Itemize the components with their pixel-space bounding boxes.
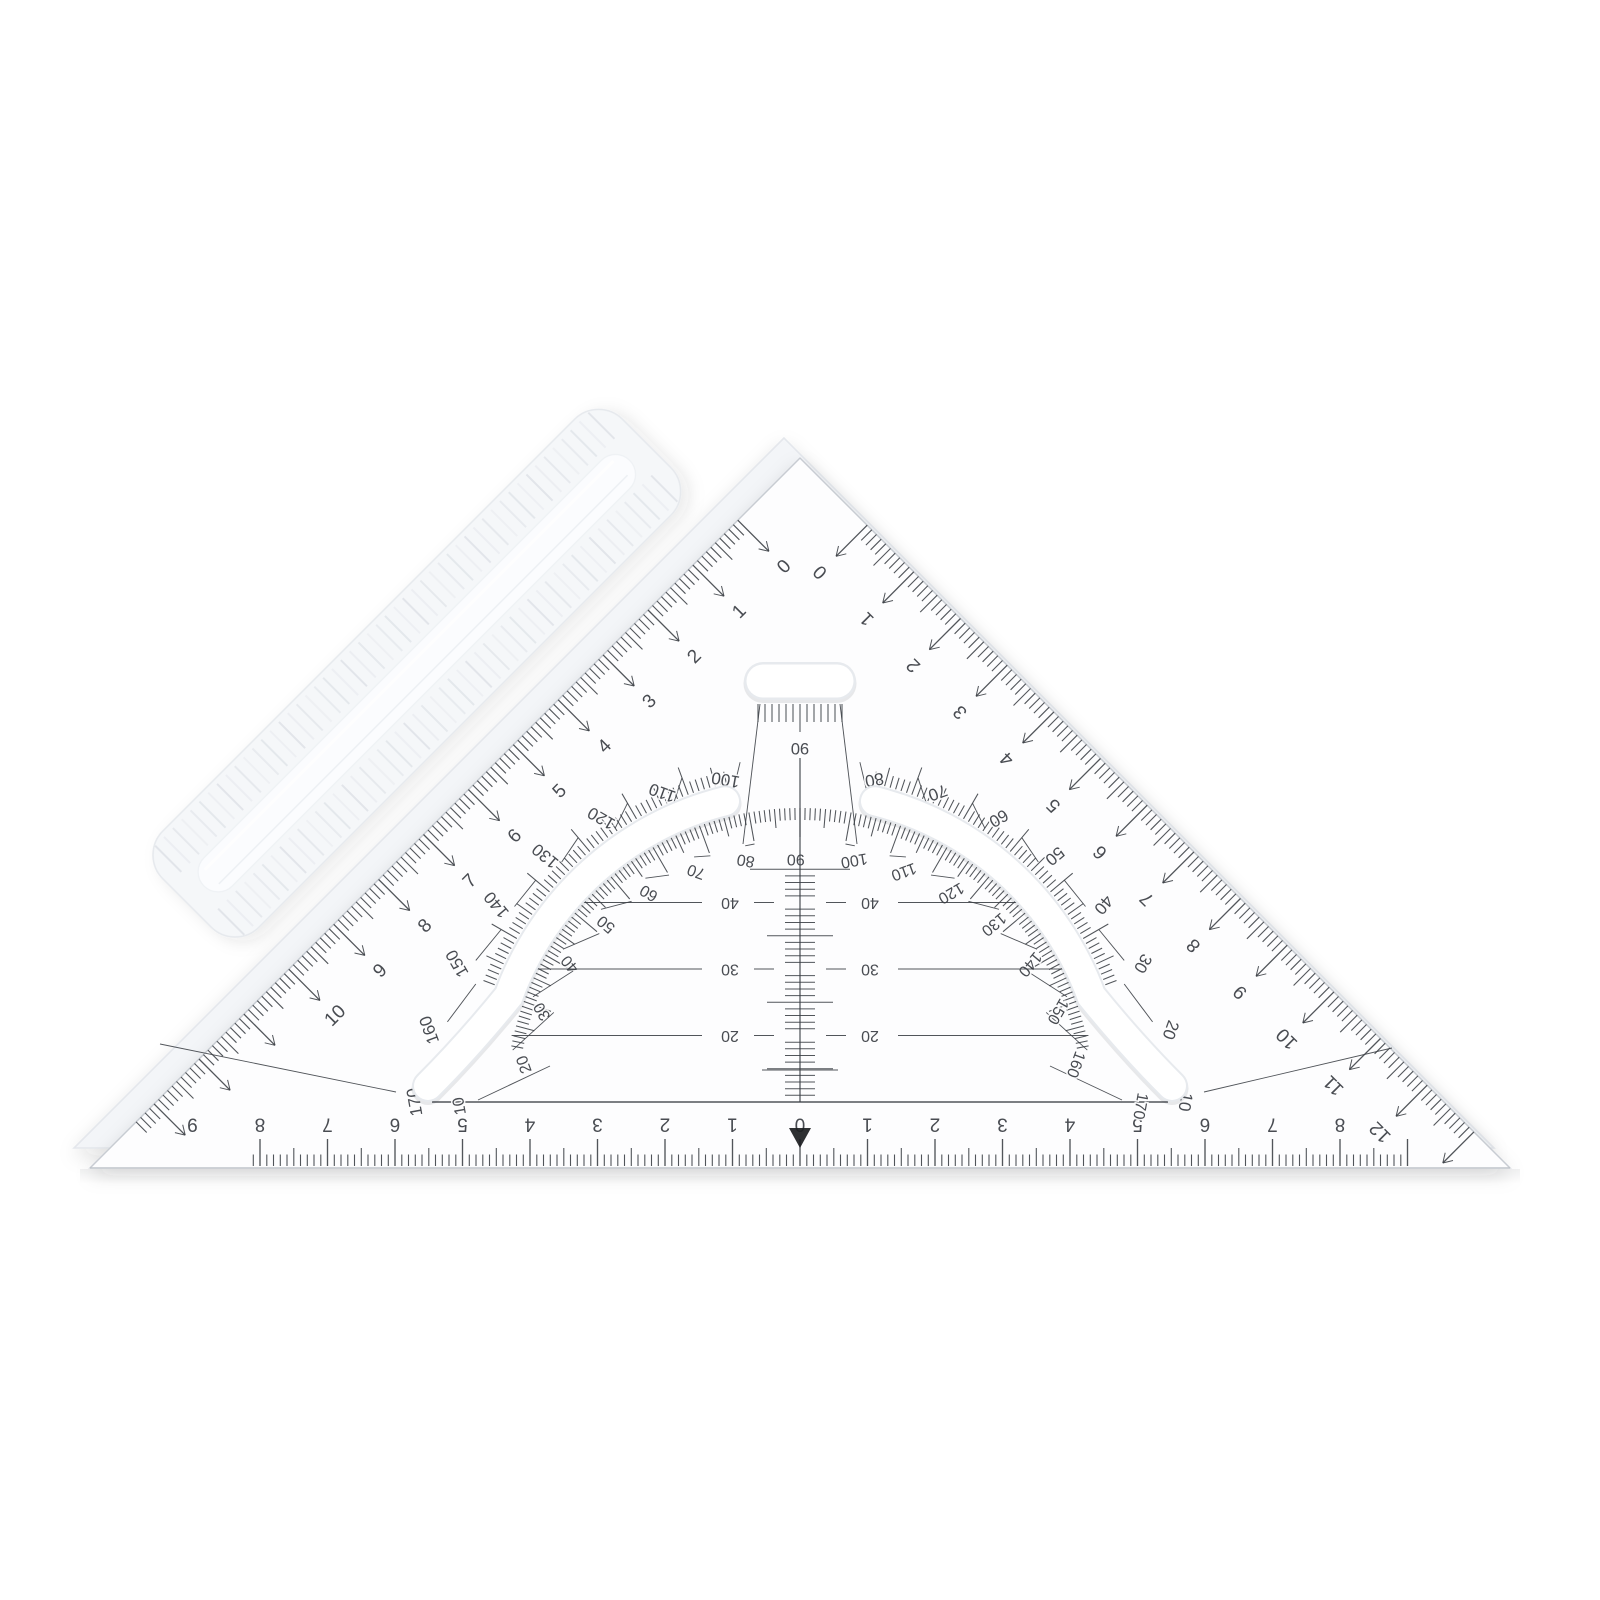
bottom-unit-label: 8 (1335, 1114, 1346, 1135)
bottom-unit-label: 6 (390, 1114, 401, 1135)
set-square-protractor-photo: 0123456789100123456789101112012345678912… (0, 0, 1600, 1600)
bottom-unit-label: 8 (255, 1114, 266, 1135)
bottom-unit-label: 1 (862, 1114, 873, 1135)
bottom-edge-shade (80, 1169, 1520, 1184)
protractor-inner-label: 90 (787, 851, 805, 868)
bottom-unit-label: 7 (322, 1114, 333, 1135)
guide-line-label: 40 (721, 894, 739, 911)
guide-line-label: 30 (721, 961, 739, 978)
guide-line-label: 40 (861, 894, 879, 911)
bottom-unit-label: 4 (1064, 1114, 1075, 1135)
bottom-unit-label: 6 (1200, 1114, 1211, 1135)
bottom-unit-label: 5 (457, 1114, 468, 1135)
guide-line-label: 20 (721, 1027, 739, 1044)
bottom-unit-label: 2 (930, 1114, 941, 1135)
bottom-unit-label: 1 (727, 1114, 738, 1135)
bottom-unit-label: 2 (660, 1114, 671, 1135)
bottom-unit-label: 9 (187, 1114, 198, 1135)
protractor-inner-label: 80 (736, 850, 757, 870)
bottom-unit-label: 3 (592, 1114, 603, 1135)
guide-line-label: 30 (861, 961, 879, 978)
bottom-unit-label: 4 (524, 1114, 535, 1135)
protractor-inner-label: 10 (450, 1096, 470, 1117)
bottom-unit-label: 3 (997, 1114, 1008, 1135)
bottom-unit-label: 7 (1267, 1114, 1278, 1135)
fan-90-label: 90 (791, 739, 809, 757)
guide-line-label: 20 (861, 1027, 879, 1044)
top-pill-slot (763, 681, 837, 684)
product-photo-stage: 0123456789100123456789101112012345678912… (0, 0, 1600, 1600)
